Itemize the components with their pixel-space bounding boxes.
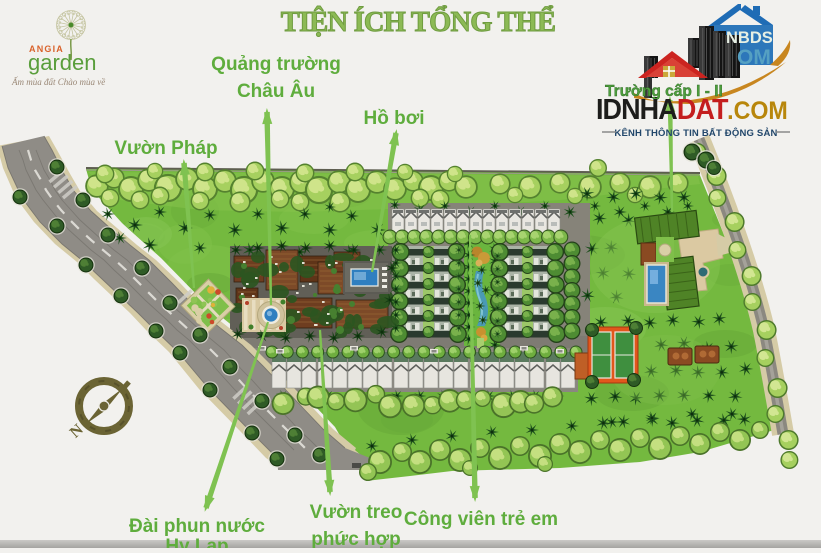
svg-text:Công viên trẻ em: Công viên trẻ em <box>404 509 558 530</box>
svg-text:Vườn Pháp: Vườn Pháp <box>114 138 217 159</box>
svg-text:Hy Lạp: Hy Lạp <box>165 536 228 548</box>
svg-text:NBDS: NBDS <box>726 29 773 47</box>
svg-text:Quảng trường: Quảng trường <box>211 54 341 75</box>
svg-text:DAT: DAT <box>677 93 728 125</box>
svg-text:garden: garden <box>28 50 97 75</box>
svg-text:phức hợp: phức hợp <box>311 529 401 548</box>
svg-text:Châu Âu: Châu Âu <box>237 80 315 102</box>
svg-text:Vườn treo: Vườn treo <box>310 502 403 523</box>
svg-text:KÊNH THÔNG TIN BẤT ĐỘNG SẢN: KÊNH THÔNG TIN BẤT ĐỘNG SẢN <box>614 127 777 139</box>
svg-text:TIỆN ÍCH TỔNG THỂ: TIỆN ÍCH TỔNG THỂ <box>281 4 555 38</box>
svg-text:Hồ bơi: Hồ bơi <box>364 108 425 129</box>
svg-text:.COM: .COM <box>727 97 788 125</box>
svg-text:IDNHA: IDNHA <box>596 93 677 125</box>
svg-text:Ấm mùa đất Chào mùa về: Ấm mùa đất Chào mùa về <box>11 77 106 87</box>
svg-text:OM: OM <box>737 46 771 69</box>
svg-text:Đài phun nước: Đài phun nước <box>129 516 265 537</box>
